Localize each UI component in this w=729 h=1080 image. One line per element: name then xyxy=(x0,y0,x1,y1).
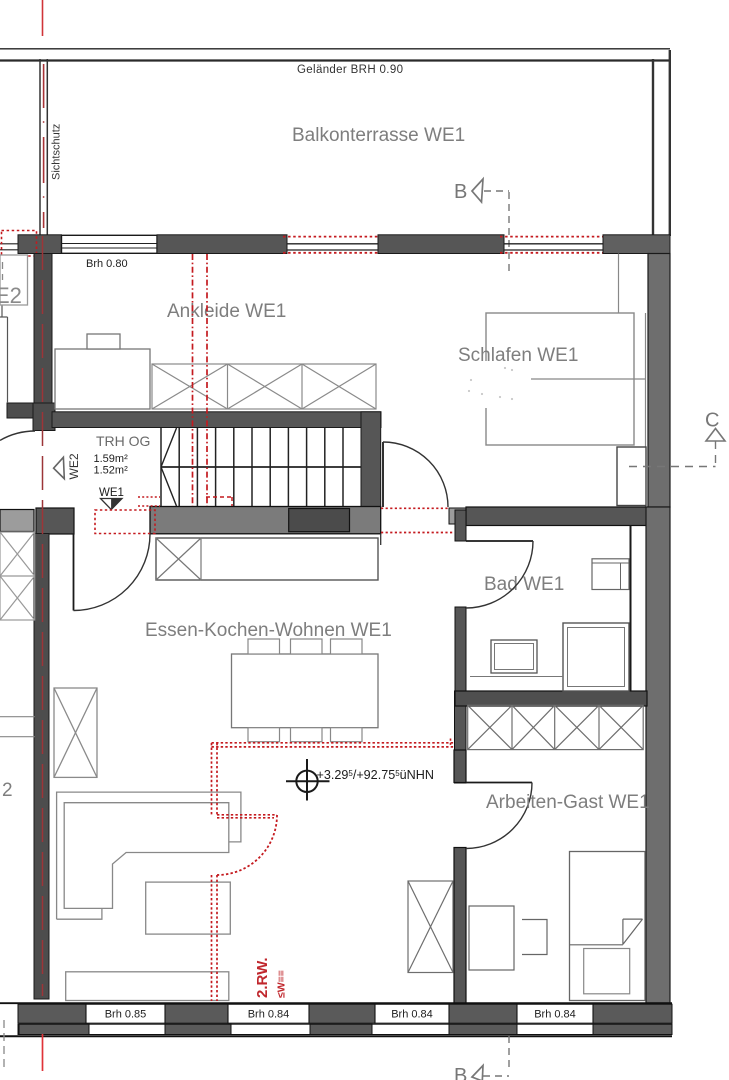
svg-text:Geländer BRH 0.90: Geländer BRH 0.90 xyxy=(297,64,403,76)
svg-text:≤W≡≡: ≤W≡≡ xyxy=(276,970,288,998)
svg-text:Brh 0.84: Brh 0.84 xyxy=(391,1009,433,1021)
svg-text:Brh 0.84: Brh 0.84 xyxy=(534,1009,576,1021)
svg-text:Brh 0.80: Brh 0.80 xyxy=(86,258,128,270)
svg-text:Ankleide WE1: Ankleide WE1 xyxy=(167,301,286,322)
svg-text:TRH OG: TRH OG xyxy=(96,433,150,449)
svg-text:WE2: WE2 xyxy=(67,453,81,479)
svg-text:+3.295/+92.755üNHN: +3.295/+92.755üNHN xyxy=(317,768,434,782)
svg-text:WE1: WE1 xyxy=(99,487,124,499)
svg-text:Bad WE1: Bad WE1 xyxy=(484,574,564,595)
svg-text:Arbeiten-Gast WE1: Arbeiten-Gast WE1 xyxy=(486,792,650,813)
svg-text:2: 2 xyxy=(2,780,13,801)
svg-text:Schlafen WE1: Schlafen WE1 xyxy=(458,345,578,366)
svg-text:Essen-Kochen-Wohnen WE1: Essen-Kochen-Wohnen WE1 xyxy=(145,620,392,641)
svg-text:B: B xyxy=(454,181,467,203)
svg-text:1.59m²: 1.59m² xyxy=(94,453,129,465)
svg-text:E2: E2 xyxy=(0,283,22,308)
svg-text:Brh 0.84: Brh 0.84 xyxy=(248,1009,290,1021)
svg-text:Brh 0.85: Brh 0.85 xyxy=(105,1009,147,1021)
svg-text:B: B xyxy=(454,1065,467,1080)
svg-text:C: C xyxy=(705,410,719,432)
svg-text:Sichtschutz: Sichtschutz xyxy=(51,124,63,180)
svg-text:2.RW.: 2.RW. xyxy=(254,957,271,998)
svg-text:Balkonterrasse WE1: Balkonterrasse WE1 xyxy=(292,125,465,146)
svg-text:1.52m²: 1.52m² xyxy=(94,465,129,477)
